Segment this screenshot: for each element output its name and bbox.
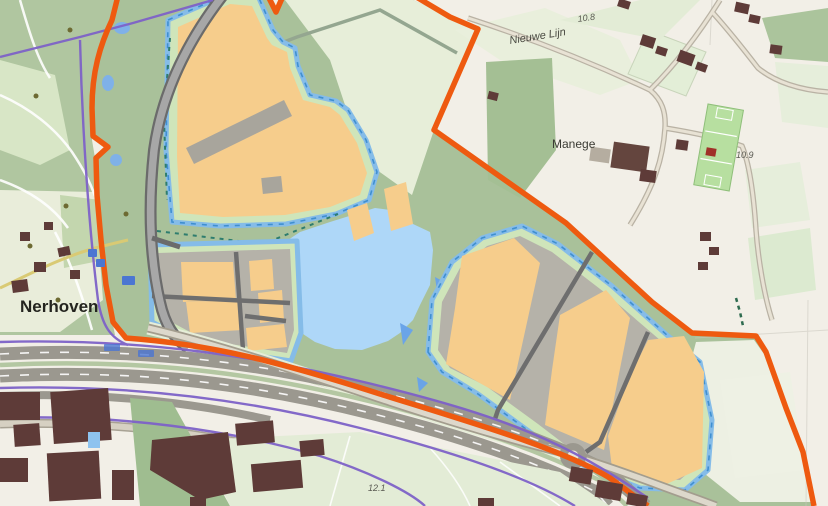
label-settlement: Nerhoven [20,297,98,316]
red-shed [705,147,716,157]
spot-height-bottom: 12.1 [368,483,386,493]
label-poi: Manege [552,137,596,151]
spot-height-right: 10.9 [736,150,754,160]
map-canvas: Nerhoven Nieuwe Lijn Manege 10.8 10.9 12… [0,0,828,506]
north-plot-shed [261,176,283,194]
pool [88,432,100,448]
